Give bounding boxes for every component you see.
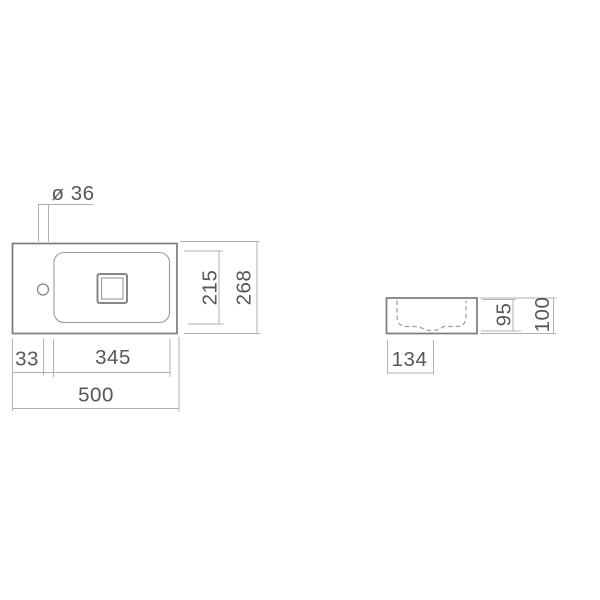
dim-label-overall-depth: 268	[233, 270, 256, 306]
dim-faucet-hole-diameter: ø 36	[38, 182, 95, 242]
dim-label-faucet-hole: ø 36	[51, 182, 94, 205]
side-basin-hidden-contour	[397, 301, 466, 331]
technical-drawing-canvas: ø 36 215 268 33 345	[0, 0, 600, 600]
dim-basin-bottom-width: 134	[388, 340, 434, 374]
plan-drain-inner	[102, 278, 124, 299]
dim-label-overall-width: 500	[78, 384, 114, 407]
plan-basin-bowl	[54, 253, 170, 323]
dim-label-hole-offset: 33	[15, 348, 39, 371]
side-view	[387, 298, 478, 334]
dim-inner-height: 95	[481, 300, 521, 332]
dim-label-basin-width: 345	[95, 346, 131, 369]
dim-label-inner-height: 95	[493, 303, 516, 327]
plan-view	[13, 244, 178, 334]
dim-overall-height: 100	[480, 297, 557, 334]
dim-label-basin-depth: 215	[199, 270, 222, 306]
plan-faucet-hole	[38, 284, 49, 295]
dim-label-overall-height: 100	[531, 297, 554, 333]
dim-label-basin-bottom-width: 134	[392, 348, 428, 371]
dim-basin-depth: 215	[184, 251, 224, 324]
technical-drawing-page: ø 36 215 268 33 345	[0, 0, 600, 600]
side-body-outline	[387, 298, 478, 334]
